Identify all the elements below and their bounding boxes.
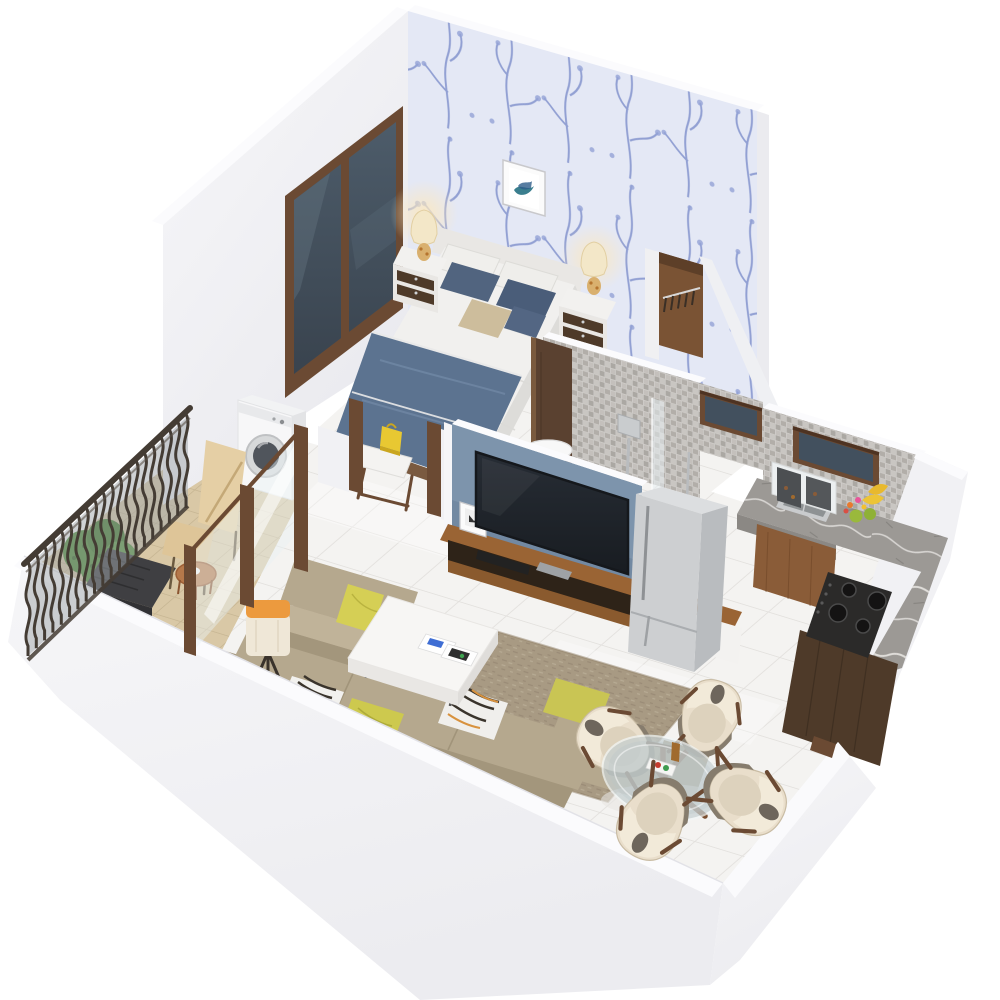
lamp-shade-body	[246, 614, 290, 656]
open-wardrobe	[645, 248, 703, 360]
bottle	[671, 742, 680, 762]
window-mullion	[341, 156, 349, 344]
door-post	[427, 421, 441, 517]
door-post	[184, 544, 196, 656]
lamp-base	[417, 243, 431, 261]
lamp-shade	[411, 210, 437, 245]
door-post	[294, 424, 308, 572]
apple-green	[864, 508, 876, 520]
wardrobe-side-panel	[645, 248, 659, 360]
lamp-shade	[581, 242, 607, 277]
tv-wall-end-cap	[444, 422, 452, 540]
lamp-base	[587, 277, 601, 295]
fridge-front	[628, 494, 702, 672]
apple-green	[850, 510, 863, 523]
floorplan-render-canvas	[0, 0, 1000, 1000]
isometric-apartment-render	[0, 0, 1000, 1000]
door-post	[240, 484, 254, 608]
door-post	[349, 398, 363, 494]
refrigerator	[628, 487, 728, 672]
